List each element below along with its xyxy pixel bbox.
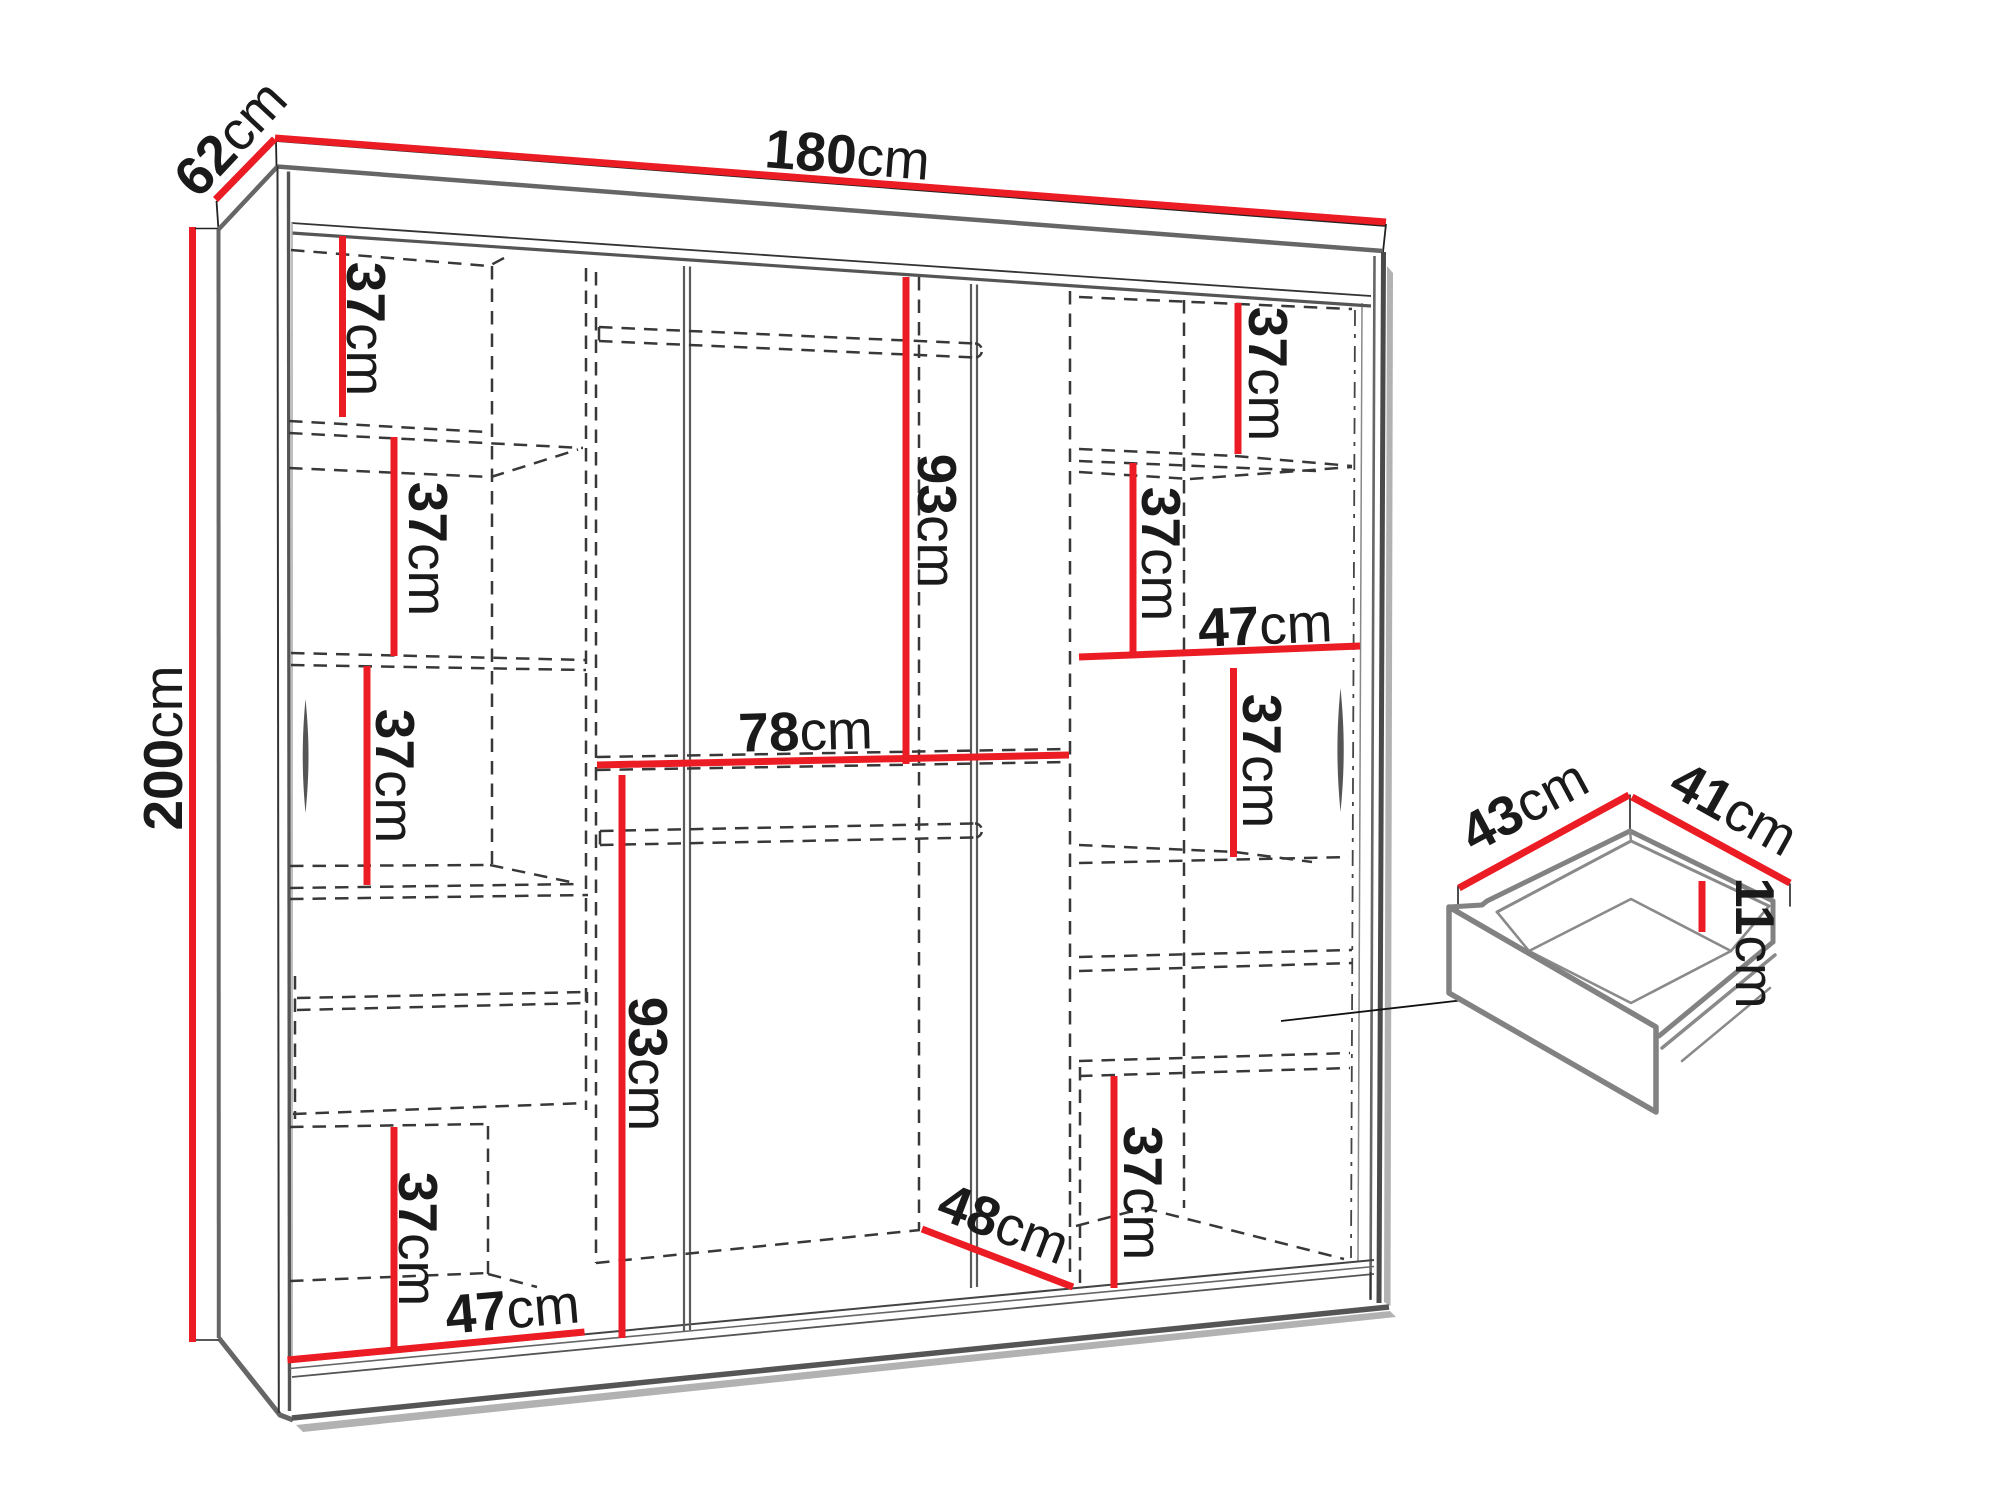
svg-text:37cm: 37cm (1231, 694, 1293, 829)
svg-text:180cm: 180cm (763, 117, 932, 191)
svg-text:37cm: 37cm (364, 709, 426, 844)
svg-text:37cm: 37cm (387, 1172, 449, 1307)
svg-text:37cm: 37cm (1112, 1126, 1174, 1261)
svg-text:37cm: 37cm (335, 262, 397, 397)
svg-text:37cm: 37cm (1237, 307, 1299, 442)
svg-text:93cm: 93cm (617, 997, 679, 1132)
svg-text:37cm: 37cm (397, 482, 459, 617)
svg-text:47cm: 47cm (443, 1272, 582, 1345)
svg-text:78cm: 78cm (737, 698, 873, 763)
svg-text:200cm: 200cm (132, 665, 194, 830)
svg-text:37cm: 37cm (1130, 487, 1192, 622)
svg-text:11cm: 11cm (1724, 877, 1786, 1008)
svg-text:93cm: 93cm (906, 454, 968, 589)
svg-text:47cm: 47cm (1197, 591, 1334, 659)
